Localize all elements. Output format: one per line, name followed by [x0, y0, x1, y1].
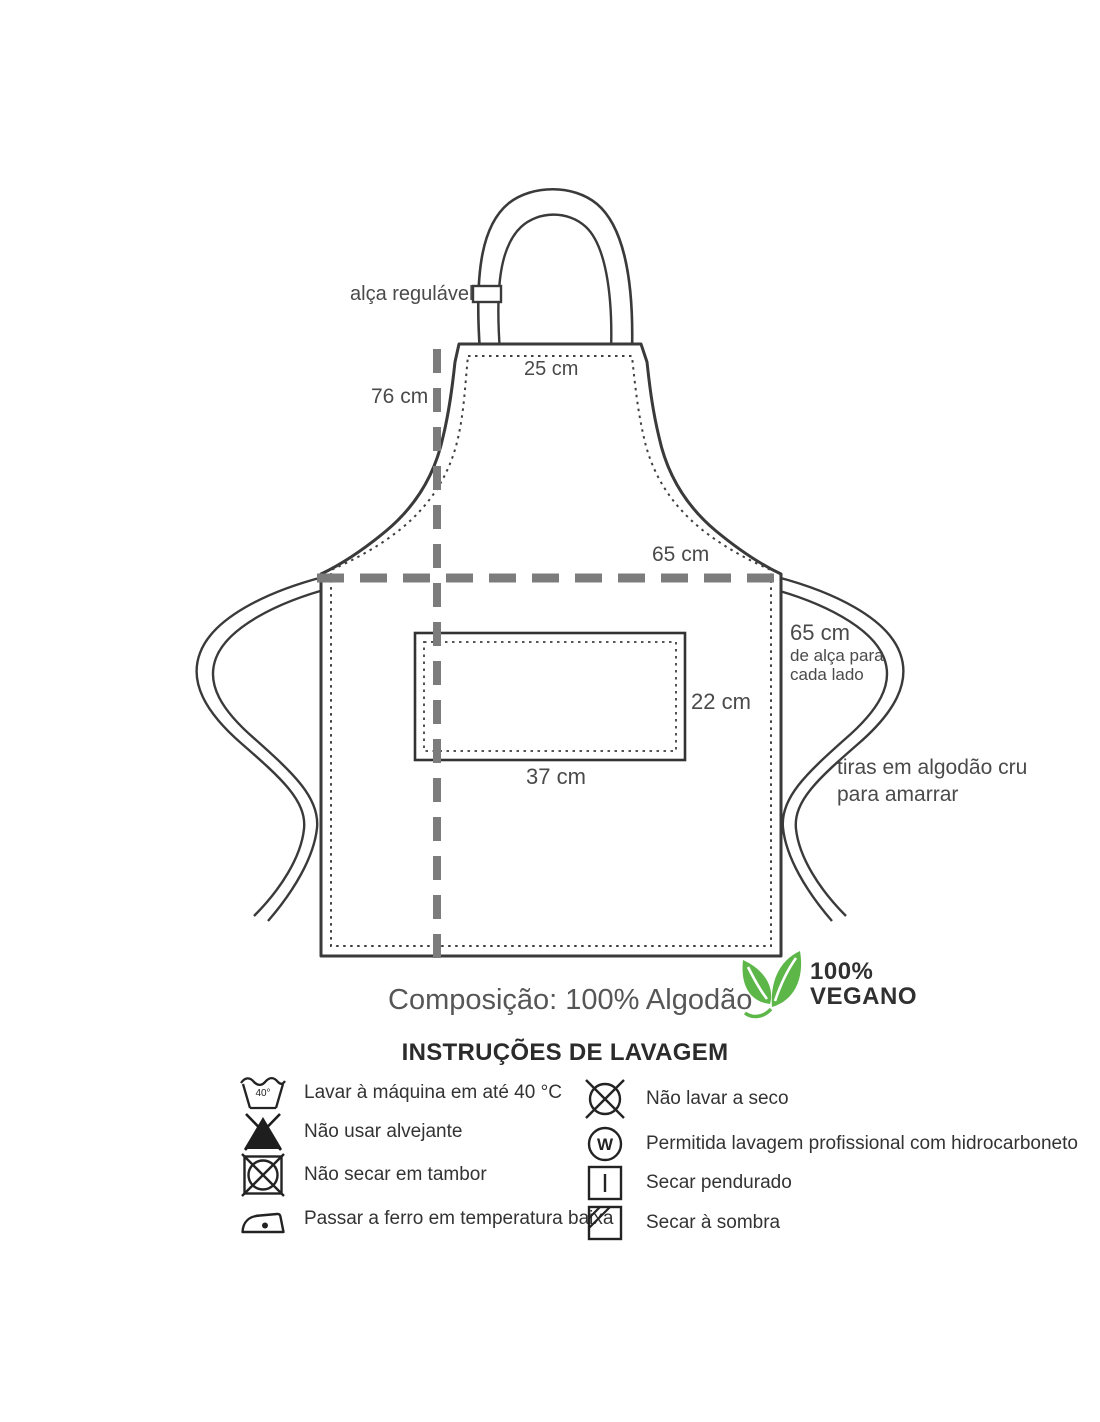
- label-tie-length: 65 cm de alça para cada lado: [790, 620, 884, 684]
- vegan-label: VEGANO: [810, 984, 917, 1009]
- pocket-outline: [415, 633, 685, 760]
- machine-wash-40-icon: 40°: [236, 1074, 290, 1112]
- care-item-label: Não secar em tambor: [304, 1164, 487, 1186]
- label-tie-length-note-2: cada lado: [790, 665, 884, 684]
- care-item-label: Secar pendurado: [646, 1172, 792, 1194]
- dry-in-shade-icon: [578, 1204, 632, 1242]
- care-item: 40° Lavar à máquina em até 40 °C: [236, 1074, 562, 1112]
- care-item: Secar à sombra: [578, 1204, 780, 1242]
- care-item: Não lavar a seco: [578, 1078, 789, 1120]
- label-ties-material-line-2: para amarrar: [837, 781, 1027, 808]
- iron-low-temperature-icon: [236, 1203, 290, 1235]
- svg-text:40°: 40°: [255, 1088, 270, 1099]
- no-dry-clean-icon: [578, 1078, 632, 1120]
- label-ties-material: tiras em algodão cru para amarrar: [837, 754, 1027, 808]
- care-instructions-title: INSTRUÇÕES DE LAVAGEM: [230, 1039, 900, 1067]
- care-item-label: Passar a ferro em temperatura baixa: [304, 1208, 613, 1230]
- care-item-label: Permitida lavagem profissional com hidro…: [646, 1133, 1078, 1155]
- leaves-icon: [736, 946, 806, 1022]
- no-bleach-icon: [236, 1112, 290, 1152]
- label-tie-length-value: 65 cm: [790, 620, 884, 646]
- neck-strap-inner-line: [498, 215, 611, 352]
- left-tie-outer-line: [197, 577, 323, 916]
- strap-adjuster: [473, 286, 501, 302]
- care-item-label: Não usar alvejante: [304, 1121, 462, 1143]
- label-pocket-height: 22 cm: [691, 689, 751, 715]
- professional-wet-clean-icon: W: [578, 1124, 632, 1164]
- care-item: Secar pendurado: [578, 1164, 792, 1202]
- label-tie-length-note-1: de alça para: [790, 646, 884, 665]
- apron-spec-diagram: alça regulável 25 cm 76 cm 65 cm 65 cm d…: [0, 0, 1100, 1422]
- label-waist-width: 65 cm: [652, 543, 709, 567]
- label-top-width: 25 cm: [524, 358, 578, 381]
- care-item: W Permitida lavagem profissional com hid…: [578, 1124, 1078, 1164]
- vegan-badge-text: 100% VEGANO: [810, 959, 917, 1009]
- composition-text: Composição: 100% Algodão: [388, 984, 752, 1017]
- hang-dry-icon: [578, 1164, 632, 1202]
- vegan-badge: 100% VEGANO: [736, 946, 917, 1022]
- label-height: 76 cm: [371, 385, 428, 409]
- care-item-label: Não lavar a seco: [646, 1088, 789, 1110]
- no-tumble-dry-icon: [236, 1152, 290, 1198]
- care-item: Passar a ferro em temperatura baixa: [236, 1203, 613, 1235]
- care-item-label: Lavar à máquina em até 40 °C: [304, 1082, 562, 1104]
- care-item: Não secar em tambor: [236, 1152, 487, 1198]
- svg-text:W: W: [597, 1135, 614, 1154]
- care-item: Não usar alvejante: [236, 1112, 462, 1152]
- label-ties-material-line-1: tiras em algodão cru: [837, 754, 1027, 781]
- label-strap-adjustable: alça regulável: [350, 283, 468, 306]
- label-pocket-width: 37 cm: [526, 764, 586, 790]
- vegan-percent: 100%: [810, 959, 917, 984]
- left-tie-inner-line: [213, 588, 331, 921]
- care-item-label: Secar à sombra: [646, 1212, 780, 1234]
